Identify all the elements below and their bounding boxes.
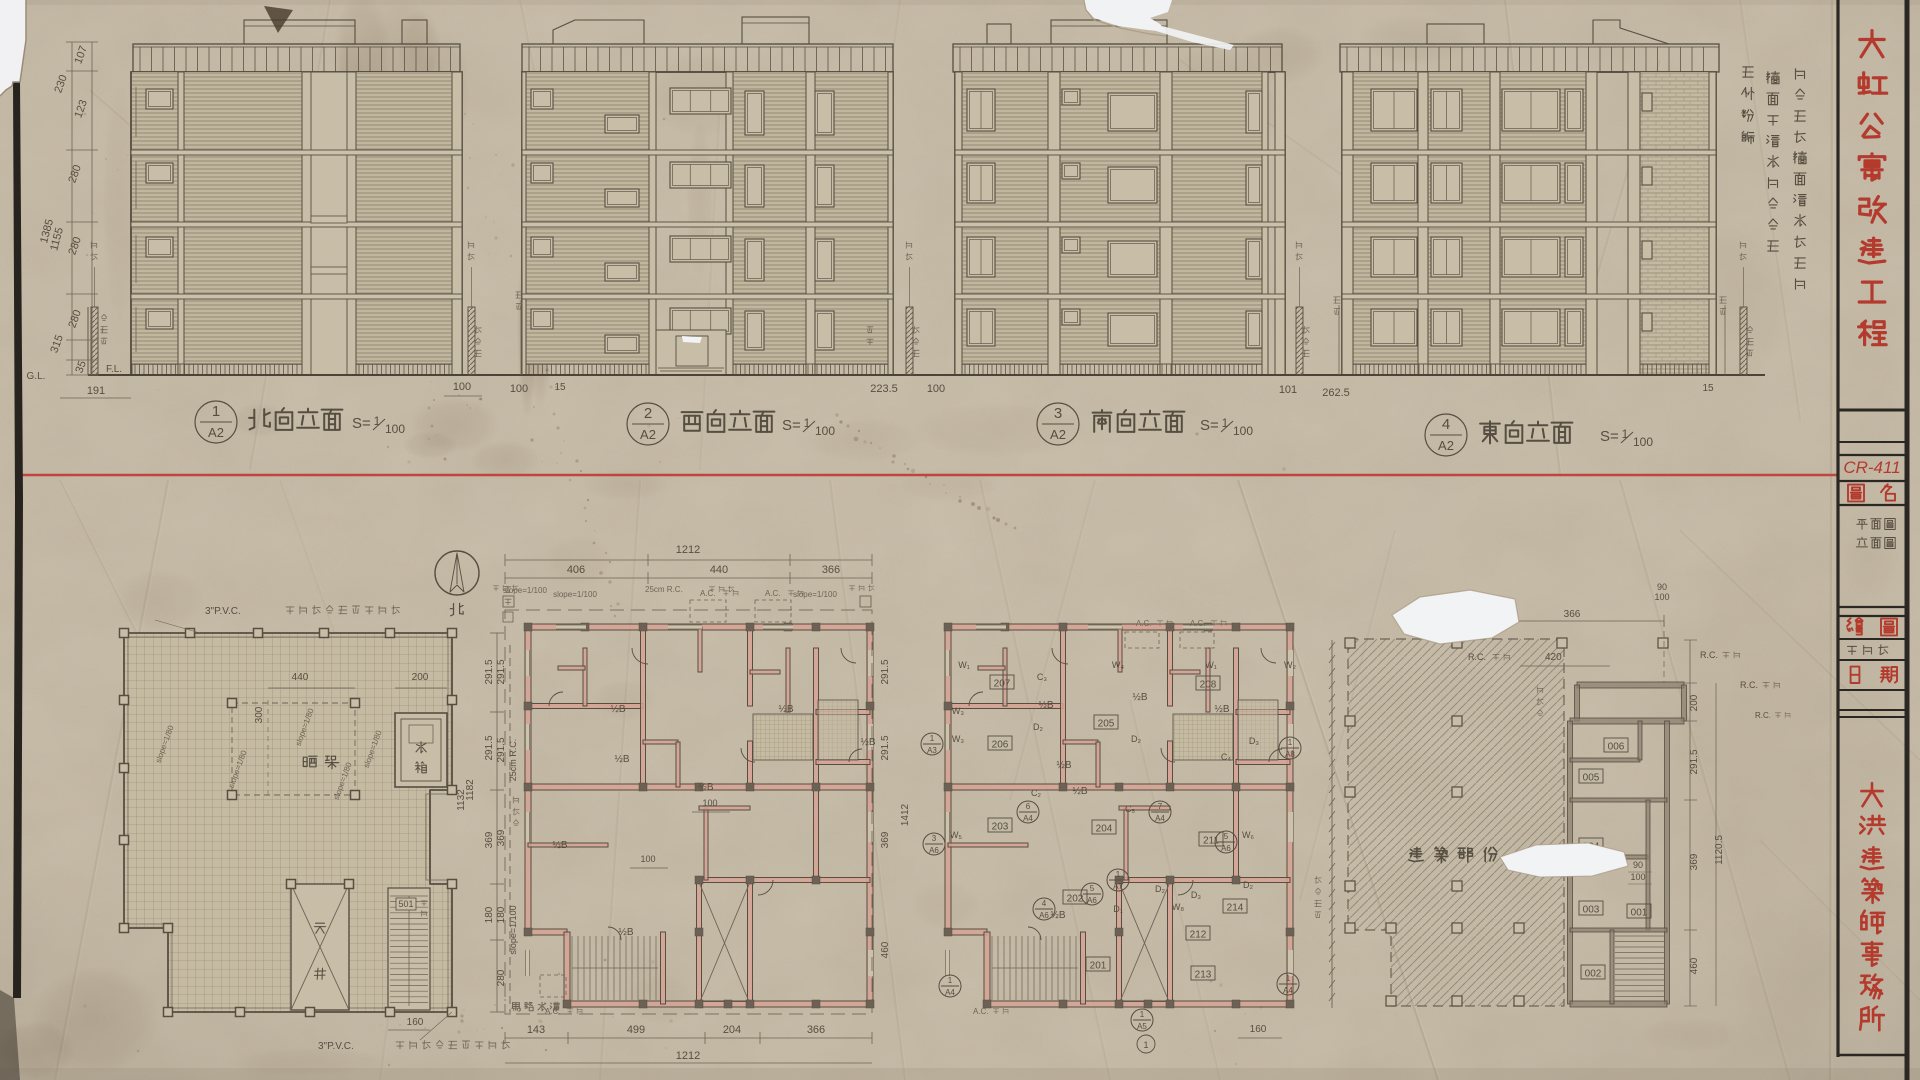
svg-text:R.C.: R.C.	[1700, 650, 1718, 660]
svg-text:1: 1	[1116, 870, 1121, 879]
svg-text:slope=1/100: slope=1/100	[508, 905, 518, 954]
svg-text:100: 100	[453, 381, 471, 393]
svg-text:D₂: D₂	[1131, 734, 1141, 744]
svg-text:002: 002	[1585, 969, 1602, 980]
svg-text:W₃: W₃	[952, 706, 964, 716]
svg-text:slope=1/100: slope=1/100	[503, 586, 547, 595]
svg-text:½B: ½B	[614, 754, 629, 765]
svg-text:1: 1	[1143, 1040, 1148, 1050]
svg-text:1: 1	[212, 403, 220, 420]
svg-text:100: 100	[640, 854, 655, 864]
svg-text:214: 214	[1227, 903, 1244, 914]
svg-text:211: 211	[1203, 836, 1219, 847]
svg-text:1132: 1132	[456, 789, 467, 811]
svg-text:460: 460	[880, 941, 891, 958]
svg-text:A6: A6	[1221, 844, 1231, 853]
svg-text:291.5: 291.5	[880, 735, 891, 760]
svg-text:1: 1	[930, 734, 935, 743]
svg-text:006: 006	[1608, 742, 1625, 753]
svg-text:369: 369	[880, 831, 891, 848]
svg-text:A3: A3	[927, 746, 937, 755]
svg-text:204: 204	[1096, 824, 1113, 835]
svg-text:291.5: 291.5	[880, 659, 891, 684]
svg-text:W₈: W₈	[1172, 902, 1184, 912]
svg-text:slope=1/100: slope=1/100	[553, 590, 597, 599]
svg-text:D₂: D₂	[1033, 722, 1043, 732]
svg-text:291.5: 291.5	[484, 659, 495, 684]
svg-text:420: 420	[1545, 652, 1562, 663]
svg-text:366: 366	[807, 1024, 825, 1036]
svg-text:C₄: C₄	[1221, 752, 1231, 762]
svg-text:4: 4	[1442, 416, 1450, 433]
svg-text:206: 206	[992, 740, 1009, 751]
svg-text:205: 205	[1098, 719, 1115, 730]
svg-text:A4: A4	[1155, 814, 1165, 823]
svg-text:1: 1	[1286, 974, 1291, 983]
svg-text:100: 100	[815, 424, 835, 438]
svg-text:1412: 1412	[900, 803, 911, 826]
svg-text:291.5: 291.5	[1689, 749, 1700, 774]
svg-text:A5: A5	[1137, 1022, 1147, 1031]
svg-text:A.C.: A.C.	[973, 1007, 989, 1016]
svg-text:S=: S=	[782, 417, 801, 434]
svg-text:001: 001	[1631, 908, 1648, 919]
svg-text:3: 3	[932, 834, 937, 843]
svg-text:1212: 1212	[676, 1050, 700, 1062]
svg-text:300: 300	[254, 706, 265, 723]
svg-text:F.L.: F.L.	[106, 364, 122, 375]
svg-text:½B: ½B	[1038, 700, 1053, 711]
svg-text:201: 201	[1090, 961, 1107, 972]
svg-text:S=: S=	[1200, 417, 1219, 434]
svg-text:204: 204	[723, 1024, 741, 1036]
svg-text:½B: ½B	[618, 927, 633, 938]
svg-text:369: 369	[484, 831, 495, 848]
svg-text:G.L.: G.L.	[27, 371, 46, 382]
svg-text:100: 100	[702, 798, 717, 808]
svg-text:½B: ½B	[1132, 692, 1147, 703]
svg-text:A.C.: A.C.	[1136, 619, 1152, 628]
svg-text:½B: ½B	[698, 782, 713, 793]
svg-text:D₁: D₁	[1113, 904, 1123, 914]
svg-text:208: 208	[1200, 680, 1217, 691]
svg-text:5: 5	[1224, 832, 1229, 841]
svg-text:A4: A4	[1023, 814, 1033, 823]
svg-text:D₃: D₃	[1191, 890, 1201, 900]
svg-text:W₂: W₂	[1284, 660, 1296, 670]
svg-text:100: 100	[1233, 424, 1253, 438]
svg-text:200: 200	[412, 672, 429, 683]
svg-text:200: 200	[1689, 694, 1700, 711]
svg-text:S=: S=	[352, 415, 371, 432]
svg-text:½B: ½B	[860, 737, 875, 748]
svg-text:1: 1	[1140, 1010, 1145, 1019]
svg-text:½B: ½B	[1056, 760, 1071, 771]
svg-text:R.C.: R.C.	[1755, 711, 1771, 720]
svg-text:366: 366	[1564, 609, 1581, 620]
svg-text:A8: A8	[1285, 750, 1295, 759]
svg-text:½B: ½B	[1072, 786, 1087, 797]
svg-text:D₃: D₃	[1249, 736, 1259, 746]
svg-text:½B: ½B	[1214, 704, 1229, 715]
svg-text:90: 90	[1633, 860, 1643, 870]
svg-text:A6: A6	[1087, 896, 1097, 905]
svg-text:160: 160	[1250, 1024, 1267, 1035]
svg-text:1212: 1212	[676, 544, 700, 556]
svg-text:W₄: W₄	[1112, 660, 1124, 670]
svg-text:A2: A2	[1050, 427, 1066, 442]
svg-text:100: 100	[510, 383, 528, 395]
svg-text:440: 440	[292, 672, 309, 683]
svg-text:100: 100	[927, 383, 945, 395]
svg-text:25cm R.C.: 25cm R.C.	[508, 739, 518, 782]
svg-text:A2: A2	[640, 427, 656, 442]
svg-text:440: 440	[710, 564, 728, 576]
svg-text:15: 15	[1702, 383, 1714, 394]
svg-text:W₃: W₃	[952, 734, 964, 744]
svg-text:369: 369	[1689, 853, 1700, 870]
svg-text:406: 406	[567, 564, 585, 576]
svg-text:A6: A6	[1039, 911, 1049, 920]
svg-text:W₁: W₁	[1205, 660, 1217, 670]
svg-text:501: 501	[398, 899, 413, 909]
svg-text:203: 203	[992, 822, 1009, 833]
svg-text:90: 90	[1657, 582, 1667, 592]
svg-text:100: 100	[1630, 872, 1645, 882]
svg-text:A2: A2	[208, 425, 224, 440]
svg-text:A6: A6	[929, 846, 939, 855]
svg-text:slope=1/100: slope=1/100	[793, 590, 837, 599]
svg-text:213: 213	[1195, 970, 1212, 981]
svg-text:½B: ½B	[610, 704, 625, 715]
svg-text:100: 100	[385, 422, 405, 436]
svg-text:W₅: W₅	[950, 830, 962, 840]
svg-text:½B: ½B	[552, 840, 567, 851]
svg-text:25cm R.C.: 25cm R.C.	[645, 585, 683, 594]
svg-text:7: 7	[1158, 802, 1163, 811]
svg-text:291.5: 291.5	[484, 735, 495, 760]
svg-text:D₂: D₂	[1243, 880, 1253, 890]
svg-text:207: 207	[994, 679, 1011, 690]
svg-text:4: 4	[1042, 899, 1047, 908]
svg-text:262.5: 262.5	[1322, 387, 1350, 399]
svg-text:A.C.: A.C.	[1190, 619, 1206, 628]
svg-text:212: 212	[1190, 930, 1207, 941]
svg-text:A4: A4	[1283, 986, 1293, 995]
svg-text:C₂: C₂	[1031, 788, 1041, 798]
svg-text:A.C.: A.C.	[700, 589, 716, 598]
svg-text:6: 6	[1026, 802, 1031, 811]
svg-text:W₁: W₁	[958, 660, 970, 670]
svg-text:W₆: W₆	[1242, 830, 1254, 840]
svg-text:A.C.: A.C.	[765, 589, 781, 598]
svg-text:1: 1	[948, 976, 953, 985]
svg-text:R.C.: R.C.	[1468, 652, 1486, 662]
svg-text:A7: A7	[1113, 882, 1123, 891]
svg-text:100: 100	[1654, 592, 1669, 602]
svg-text:223.5: 223.5	[870, 383, 898, 395]
svg-text:101: 101	[1279, 384, 1297, 396]
svg-text:100: 100	[1633, 435, 1653, 449]
svg-text:C₅: C₅	[1125, 804, 1135, 814]
svg-text:003: 003	[1583, 905, 1600, 916]
svg-text:143: 143	[527, 1024, 545, 1036]
svg-text:191: 191	[87, 385, 105, 397]
svg-text:160: 160	[407, 1017, 424, 1028]
svg-text:D₂: D₂	[1155, 884, 1165, 894]
svg-text:3"P.V.C.: 3"P.V.C.	[205, 606, 241, 617]
svg-text:460: 460	[1689, 957, 1700, 974]
svg-text:180: 180	[484, 906, 495, 923]
svg-text:R.C.: R.C.	[1740, 680, 1758, 690]
svg-text:5: 5	[1090, 884, 1095, 893]
svg-text:½B: ½B	[778, 704, 793, 715]
svg-text:1: 1	[1288, 738, 1293, 747]
svg-text:3: 3	[1054, 405, 1062, 422]
svg-text:C₃: C₃	[1037, 672, 1047, 682]
svg-text:S=: S=	[1600, 428, 1619, 445]
svg-text:366: 366	[822, 564, 840, 576]
svg-text:3"P.V.C.: 3"P.V.C.	[318, 1041, 354, 1052]
svg-text:15: 15	[554, 382, 566, 393]
svg-text:005: 005	[1583, 773, 1600, 784]
svg-text:A4: A4	[945, 988, 955, 997]
svg-text:2: 2	[644, 405, 652, 422]
svg-text:499: 499	[627, 1024, 645, 1036]
svg-text:A2: A2	[1438, 438, 1454, 453]
svg-text:CR-411: CR-411	[1843, 458, 1900, 477]
